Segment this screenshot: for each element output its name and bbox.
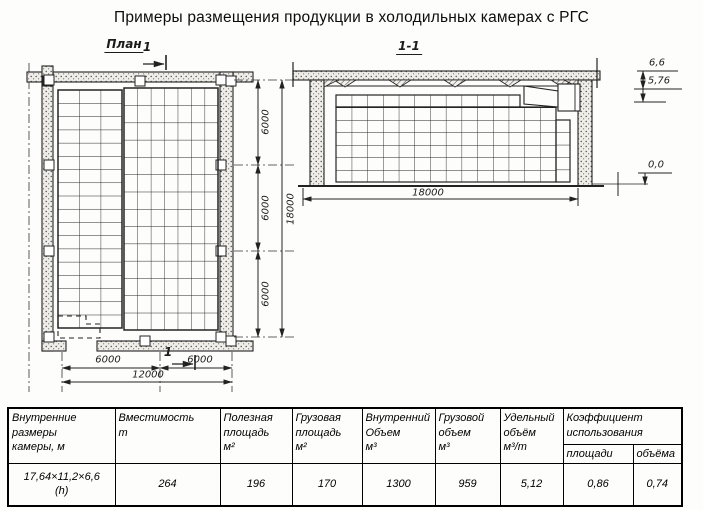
section-cargo-top-row	[336, 95, 520, 107]
header-utilization-coefficient: Коэффициент использования	[563, 408, 682, 444]
elevation-top: 6,6	[649, 58, 665, 69]
plan-dim-right-1: 6000	[261, 109, 272, 134]
document-page: Примеры размещения продукции в холодильн…	[0, 0, 703, 509]
technical-drawing	[0, 0, 703, 405]
plan-dim-bottom-2: 6000	[187, 355, 212, 366]
plan-dim-bottom-total: 12000	[132, 370, 164, 381]
header-inner-volume: Внутренний Объем м³	[362, 408, 435, 464]
header-specific-volume: Удельный объём м³/т	[500, 408, 563, 464]
plan-pallet-grid-right	[124, 88, 218, 330]
elevation-floor: 0,0	[648, 160, 664, 171]
cell-inner-volume: 1300	[362, 464, 435, 506]
cut-mark-bottom: 1	[164, 345, 172, 359]
section-cargo-right-strip	[556, 120, 570, 182]
plan-pallet-grid-left	[58, 90, 122, 328]
elevation-ceiling: 5,76	[648, 76, 670, 87]
cell-inner-dimensions: 17,64×11,2×6,6 (h)	[8, 464, 115, 506]
subheader-area: площади	[563, 444, 633, 464]
header-capacity: Вместимость т	[115, 408, 220, 464]
header-useful-area: Полезная площадь м²	[220, 408, 292, 464]
header-inner-dimensions: Внутренние размеры камеры, м	[8, 408, 115, 464]
cell-coef-volume: 0,74	[633, 464, 682, 506]
section-dim-width: 18000	[409, 188, 447, 199]
subheader-volume: объёма	[633, 444, 682, 464]
cut-mark-top: 1	[143, 40, 151, 54]
cell-specific-volume: 5,12	[500, 464, 563, 506]
plan-dim-right-total: 18000	[286, 193, 297, 225]
cell-useful-area: 196	[220, 464, 292, 506]
spec-table: Внутренние размеры камеры, м Вместимость…	[7, 407, 683, 507]
header-cargo-volume: Грузовой объем м³	[435, 408, 500, 464]
plan-dim-bottom-1: 6000	[95, 355, 120, 366]
cell-cargo-area: 170	[292, 464, 362, 506]
plan-view	[27, 55, 296, 392]
section-cargo-stack	[336, 107, 556, 182]
section-view-label: 1-1	[396, 39, 422, 55]
section-view	[293, 58, 682, 206]
cell-coef-area: 0,86	[563, 464, 633, 506]
cell-capacity: 264	[115, 464, 220, 506]
plan-dim-right-3: 6000	[261, 281, 272, 306]
plan-dim-right-2: 6000	[261, 195, 272, 220]
cell-cargo-volume: 959	[435, 464, 500, 506]
elevation-marks	[592, 71, 682, 196]
header-cargo-area: Грузовая площадь м²	[292, 408, 362, 464]
plan-view-label: План	[104, 37, 143, 53]
